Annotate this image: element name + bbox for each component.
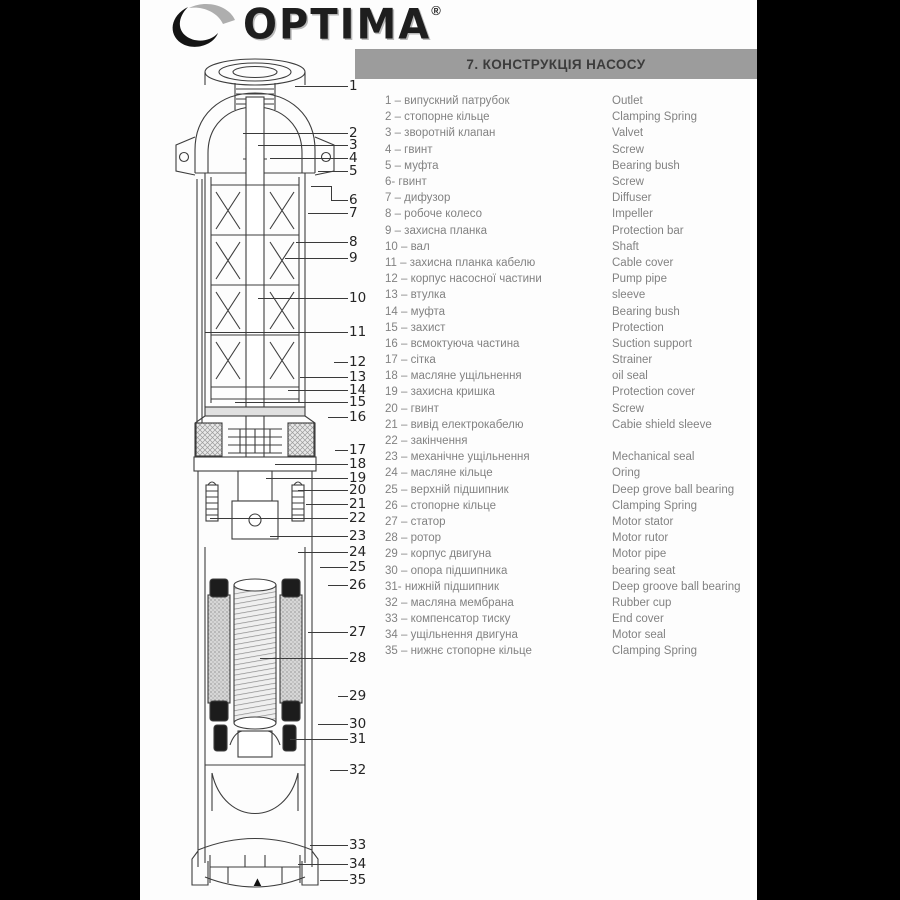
part-name-en: Cabie shield sleeve [612, 419, 757, 431]
part-name-en: Impeller [612, 208, 757, 220]
part-name-en: bearing seat [612, 565, 757, 577]
part-name-en: Diffuser [612, 192, 757, 204]
part-row-29: 29 – корпус двигунаMotor pipe [385, 546, 757, 562]
part-row-7: 7 – дифузорDiffuser [385, 190, 757, 206]
part-name-ua: 14 – муфта [385, 306, 612, 318]
callout-number-24: 24 [349, 544, 379, 560]
part-row-34: 34 – ущільнення двигунаMotor seal [385, 627, 757, 643]
leader-line [320, 880, 348, 881]
callout-number-7: 7 [349, 205, 379, 221]
parts-list: 1 – випускний патрубокOutlet2 – стопорне… [385, 93, 757, 660]
part-row-13: 13 – втулкаsleeve [385, 287, 757, 303]
part-row-15: 15 – захистProtection [385, 320, 757, 336]
part-row-14: 14 – муфтаBearing bush [385, 303, 757, 319]
part-name-ua: 16 – всмоктуюча частина [385, 338, 612, 350]
part-row-6: 6- гвинтScrew [385, 174, 757, 190]
part-name-en: Screw [612, 176, 757, 188]
part-row-10: 10 – валShaft [385, 239, 757, 255]
leader-line [330, 770, 348, 771]
part-row-23: 23 – механічне ущільненняMechanical seal [385, 449, 757, 465]
callout-number-16: 16 [349, 409, 379, 425]
part-row-2: 2 – стопорне кільцеClamping Spring [385, 109, 757, 125]
part-name-ua: 3 – зворотній клапан [385, 127, 612, 139]
part-name-en: Oring [612, 467, 757, 479]
part-name-ua: 21 – вивід електрокабелю [385, 419, 612, 431]
callout-number-29: 29 [349, 688, 379, 704]
part-name-en: Strainer [612, 354, 757, 366]
part-row-9: 9 – захисна планкаProtection bar [385, 223, 757, 239]
part-row-1: 1 – випускний патрубокOutlet [385, 93, 757, 109]
leader-line [235, 402, 348, 403]
scan-border-right [757, 0, 900, 900]
part-name-en: oil seal [612, 370, 757, 382]
part-row-24: 24 – масляне кільцеOring [385, 465, 757, 481]
part-row-12: 12 – корпус насосної частиниPump pipe [385, 271, 757, 287]
part-name-en: Cable cover [612, 257, 757, 269]
part-name-en: Bearing bush [612, 306, 757, 318]
part-name-ua: 22 – закінчення [385, 435, 612, 447]
section-title: 7. КОНСТРУКЦІЯ НАСОСУ [466, 57, 645, 72]
part-name-ua: 30 – опора підшипника [385, 565, 612, 577]
callout-number-27: 27 [349, 624, 379, 640]
part-name-ua: 2 – стопорне кільце [385, 111, 612, 123]
part-name-en: Bearing bush [612, 160, 757, 172]
callout-number-5: 5 [349, 163, 379, 179]
part-name-en: Motor pipe [612, 548, 757, 560]
part-name-ua: 31- нижній підшипник [385, 581, 612, 593]
optima-logo: OPTIMA ® [163, 1, 441, 51]
part-name-ua: 6- гвинт [385, 176, 612, 188]
leader-line [318, 724, 348, 725]
part-name-ua: 23 – механічне ущільнення [385, 451, 612, 463]
part-name-en: Shaft [612, 241, 757, 253]
part-name-ua: 26 – стопорне кільце [385, 500, 612, 512]
part-name-en: Deep grove ball bearing [612, 484, 757, 496]
part-name-en: Screw [612, 144, 757, 156]
callout-number-22: 22 [349, 510, 379, 526]
part-row-28: 28 – роторMotor rutor [385, 530, 757, 546]
part-name-ua: 11 – захисна планка кабелю [385, 257, 612, 269]
part-name-ua: 29 – корпус двигуна [385, 548, 612, 560]
callout-number-32: 32 [349, 762, 379, 778]
callout-number-23: 23 [349, 528, 379, 544]
part-row-33: 33 – компенсатор тискуEnd cover [385, 611, 757, 627]
leader-line [205, 332, 348, 333]
part-name-ua: 13 – втулка [385, 289, 612, 301]
part-row-35: 35 – нижнє стопорне кільцеClamping Sprin… [385, 643, 757, 659]
part-row-11: 11 – захисна планка кабелюCable cover [385, 255, 757, 271]
part-row-20: 20 – гвинтScrew [385, 401, 757, 417]
part-name-en: Protection bar [612, 225, 757, 237]
part-name-ua: 9 – захисна планка [385, 225, 612, 237]
part-name-en: Outlet [612, 95, 757, 107]
part-name-en: End cover [612, 613, 757, 625]
leader-line [320, 567, 348, 568]
part-name-en: Pump pipe [612, 273, 757, 285]
leader-line [306, 504, 348, 505]
callout-number-9: 9 [349, 250, 379, 266]
callout-number-15: 15 [349, 394, 379, 410]
part-row-30: 30 – опора підшипникаbearing seat [385, 562, 757, 578]
callout-number-11: 11 [349, 324, 379, 340]
section-title-bar: 7. КОНСТРУКЦІЯ НАСОСУ [355, 49, 757, 79]
part-name-ua: 12 – корпус насосної частини [385, 273, 612, 285]
part-name-ua: 25 – верхній підшипник [385, 484, 612, 496]
leader-line [296, 242, 348, 243]
part-name-ua: 24 – масляне кільце [385, 467, 612, 479]
leader-line [298, 864, 348, 865]
part-row-5: 5 – муфтаBearing bush [385, 158, 757, 174]
callout-number-10: 10 [349, 290, 379, 306]
part-name-ua: 15 – захист [385, 322, 612, 334]
leader-line [328, 585, 348, 586]
part-row-8: 8 – робоче колесоImpeller [385, 206, 757, 222]
leader-line [334, 362, 348, 363]
part-row-32: 32 – масляна мембранаRubber cup [385, 595, 757, 611]
part-name-en: Valvet [612, 127, 757, 139]
part-name-ua: 17 – сітка [385, 354, 612, 366]
part-name-ua: 32 – масляна мембрана [385, 597, 612, 609]
part-row-26: 26 – стопорне кільцеClamping Spring [385, 498, 757, 514]
part-name-ua: 27 – статор [385, 516, 612, 528]
leader-line [298, 552, 348, 553]
leader-line [295, 86, 348, 87]
callout-number-31: 31 [349, 731, 379, 747]
part-name-en: Rubber cup [612, 597, 757, 609]
leader-line [331, 186, 332, 200]
part-row-21: 21 – вивід електрокабелюCabie shield sle… [385, 417, 757, 433]
part-name-en: Protection cover [612, 386, 757, 398]
part-name-ua: 33 – компенсатор тиску [385, 613, 612, 625]
part-row-31: 31- нижній підшипникDeep groove ball bea… [385, 579, 757, 595]
part-row-18: 18 – масляне ущільненняoil seal [385, 368, 757, 384]
logo-text: OPTIMA [243, 0, 431, 50]
part-name-en: Protection [612, 322, 757, 334]
leader-line [335, 450, 348, 451]
callout-number-12: 12 [349, 354, 379, 370]
part-name-en: Clamping Spring [612, 645, 757, 657]
part-row-3: 3 – зворотній клапанValvet [385, 125, 757, 141]
part-name-ua: 18 – масляне ущільнення [385, 370, 612, 382]
callout-number-35: 35 [349, 872, 379, 888]
part-row-4: 4 – гвинтScrew [385, 142, 757, 158]
callout-number-30: 30 [349, 716, 379, 732]
leader-line [338, 696, 348, 697]
part-name-en: Mechanical seal [612, 451, 757, 463]
leader-line [285, 258, 348, 259]
leader-line [288, 390, 348, 391]
callout-number-26: 26 [349, 577, 379, 593]
callout-number-25: 25 [349, 559, 379, 575]
part-name-en: Motor rutor [612, 532, 757, 544]
leader-line [298, 490, 348, 491]
leader-line [258, 145, 348, 146]
callout-number-1: 1 [349, 78, 379, 94]
part-row-16: 16 – всмоктуюча частинаSuction support [385, 336, 757, 352]
part-name-ua: 35 – нижнє стопорне кільце [385, 645, 612, 657]
part-row-22: 22 – закінчення [385, 433, 757, 449]
leader-line [260, 658, 348, 659]
part-name-en: Suction support [612, 338, 757, 350]
page-pointer-triangle: ▲ [251, 874, 264, 889]
part-name-en: Clamping Spring [612, 111, 757, 123]
part-name-ua: 7 – дифузор [385, 192, 612, 204]
part-name-ua: 10 – вал [385, 241, 612, 253]
part-row-19: 19 – захисна кришкаProtection cover [385, 384, 757, 400]
part-name-en: Clamping Spring [612, 500, 757, 512]
leader-line [258, 298, 348, 299]
callout-number-34: 34 [349, 856, 379, 872]
registered-mark: ® [431, 3, 441, 18]
leader-line [266, 478, 348, 479]
part-name-ua: 20 – гвинт [385, 403, 612, 415]
part-row-25: 25 – верхній підшипникDeep grove ball be… [385, 482, 757, 498]
part-name-ua: 1 – випускний патрубок [385, 95, 612, 107]
leader-line [308, 213, 348, 214]
part-name-en: Deep groove ball bearing [612, 581, 757, 593]
leader-line [300, 377, 348, 378]
leader-line [331, 200, 348, 201]
leader-line [275, 464, 348, 465]
part-name-en: Motor seal [612, 629, 757, 641]
leader-line [270, 536, 348, 537]
leader-line [290, 739, 348, 740]
leader-line [210, 518, 348, 519]
part-row-27: 27 – статорMotor stator [385, 514, 757, 530]
leader-line [328, 417, 348, 418]
leader-line [243, 133, 348, 134]
part-name-en: Motor stator [612, 516, 757, 528]
part-name-ua: 19 – захисна кришка [385, 386, 612, 398]
part-name-ua: 28 – ротор [385, 532, 612, 544]
part-name-ua: 4 – гвинт [385, 144, 612, 156]
crescent-swoosh-icon [163, 1, 243, 51]
callout-number-28: 28 [349, 650, 379, 666]
part-name-en: Screw [612, 403, 757, 415]
leader-line [308, 632, 348, 633]
leader-line [310, 845, 348, 846]
part-name-en: sleeve [612, 289, 757, 301]
callout-number-8: 8 [349, 234, 379, 250]
part-row-17: 17 – сіткаStrainer [385, 352, 757, 368]
callout-number-33: 33 [349, 837, 379, 853]
part-name-ua: 8 – робоче колесо [385, 208, 612, 220]
part-name-ua: 34 – ущільнення двигуна [385, 629, 612, 641]
scan-border-left [0, 0, 140, 900]
leader-line [270, 158, 348, 159]
leader-line [318, 171, 348, 172]
leader-line [311, 186, 331, 187]
part-name-ua: 5 – муфта [385, 160, 612, 172]
